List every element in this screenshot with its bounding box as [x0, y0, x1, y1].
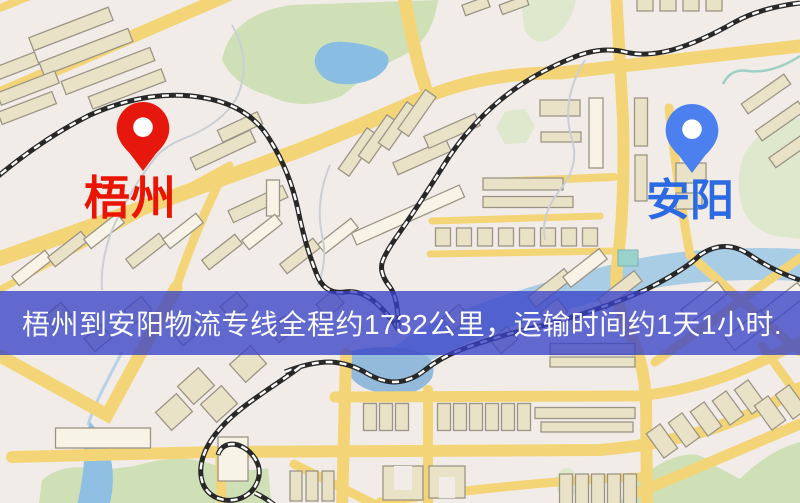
destination-city-label: 安阳	[646, 179, 734, 223]
destination-pin-icon	[664, 102, 720, 175]
route-info-text: 梧州到安阳物流专线全程约1732公里，运输时间约1天1小时.	[0, 303, 782, 343]
map-artwork	[0, 0, 800, 503]
map-buildings	[0, 0, 800, 503]
map-screenshot: 梧州到安阳物流专线全程约1732公里，运输时间约1天1小时. 梧州 安阳	[0, 0, 800, 503]
origin-pin-icon	[115, 100, 171, 173]
origin-city-label: 梧州	[84, 176, 176, 222]
route-info-banner: 梧州到安阳物流专线全程约1732公里，运输时间约1天1小时.	[0, 291, 800, 355]
